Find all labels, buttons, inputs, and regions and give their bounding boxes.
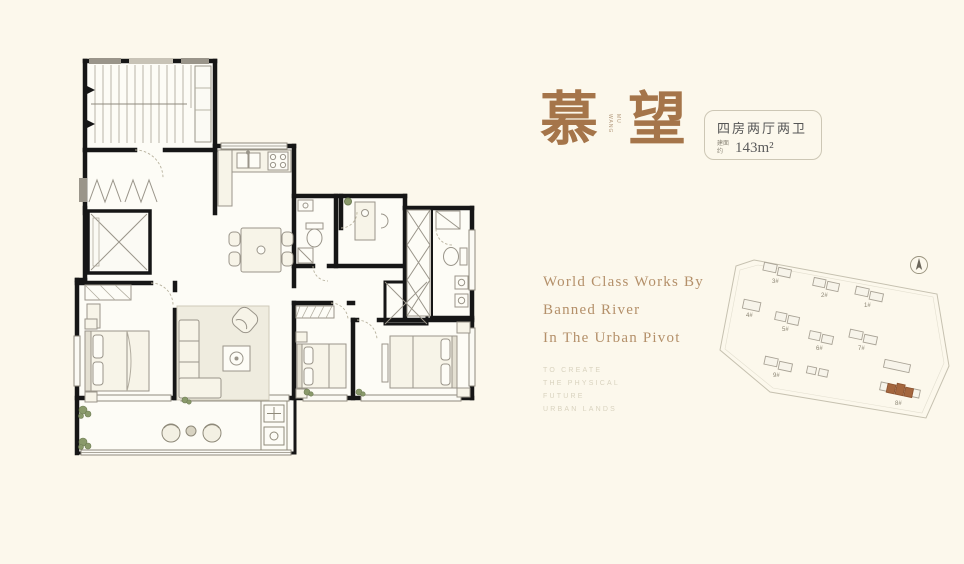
- project-title: 慕 MU WANG 望: [540, 88, 686, 152]
- building-label: 4#: [746, 313, 753, 319]
- tagline: World Class Works By Banned River In The…: [543, 274, 704, 358]
- building-3: [762, 262, 791, 278]
- seal-line: MU: [614, 114, 622, 133]
- site-buildings: [742, 262, 920, 399]
- area-prefix: 建面约: [717, 141, 731, 156]
- bed: [297, 344, 346, 388]
- site-plan: 1# 2# 3# 4# 5# 6# 7# 8# 9#: [712, 244, 962, 436]
- balcony-chair: [203, 424, 221, 442]
- seal-line: WANG: [606, 114, 614, 133]
- bed: [382, 336, 457, 388]
- building-label: 7#: [858, 346, 865, 352]
- utility-cabinet: [261, 401, 287, 450]
- apartment-floor-plan: [55, 48, 485, 468]
- tagline-line: In The Urban Pivot: [543, 330, 704, 347]
- building-6: [808, 331, 833, 345]
- area-value: 143m²: [735, 141, 774, 156]
- kitchen-sink: [237, 151, 260, 168]
- unit-layout-text: 四房两厅两卫: [717, 118, 809, 137]
- tagline-line: World Class Works By: [543, 274, 704, 291]
- building-label: 1#: [864, 303, 871, 309]
- building-label: 8#: [895, 401, 902, 407]
- subtext-line: THE PHYSICAL: [543, 380, 620, 387]
- faint-subtext: TO CREATE THE PHYSICAL FUTURE URBAN LAND…: [543, 367, 620, 419]
- wardrobe: [407, 210, 430, 316]
- title-seal-text: MU WANG: [606, 114, 622, 133]
- building-aux: [883, 359, 910, 372]
- building-label: 2#: [821, 293, 828, 299]
- toilet-icon: [444, 248, 468, 266]
- balcony-table: [186, 426, 196, 436]
- unit-spec-box: 四房两厅两卫 建面约 143m²: [704, 110, 822, 160]
- building-7: [848, 329, 877, 345]
- building-1: [854, 286, 883, 302]
- subtext-line: TO CREATE: [543, 367, 620, 374]
- toilet-icon: [306, 223, 323, 247]
- title-char-right: 望: [628, 88, 686, 152]
- building-5: [774, 312, 799, 326]
- building-label: 6#: [816, 346, 823, 352]
- stove-icon: [268, 152, 288, 170]
- building-9: [763, 356, 792, 372]
- balcony-chair: [162, 424, 180, 442]
- building-8-highlighted: [879, 380, 920, 399]
- building-label: 9#: [773, 373, 780, 379]
- building-aux: [806, 366, 828, 377]
- north-arrow-icon: [911, 257, 928, 274]
- building-2: [812, 277, 839, 291]
- bed: [85, 331, 149, 391]
- elevator: [88, 211, 150, 273]
- tagline-line: Banned River: [543, 302, 704, 319]
- title-char-left: 慕: [540, 88, 598, 152]
- coffee-table: [223, 346, 250, 371]
- building-4: [742, 299, 760, 311]
- tv-console: [296, 306, 334, 318]
- subtext-line: FUTURE: [543, 393, 620, 400]
- building-label: 5#: [782, 327, 789, 333]
- subtext-line: URBAN LANDS: [543, 406, 620, 413]
- poster-canvas: 慕 MU WANG 望 四房两厅两卫 建面约 143m² World Class…: [0, 0, 964, 564]
- building-label: 3#: [772, 279, 779, 285]
